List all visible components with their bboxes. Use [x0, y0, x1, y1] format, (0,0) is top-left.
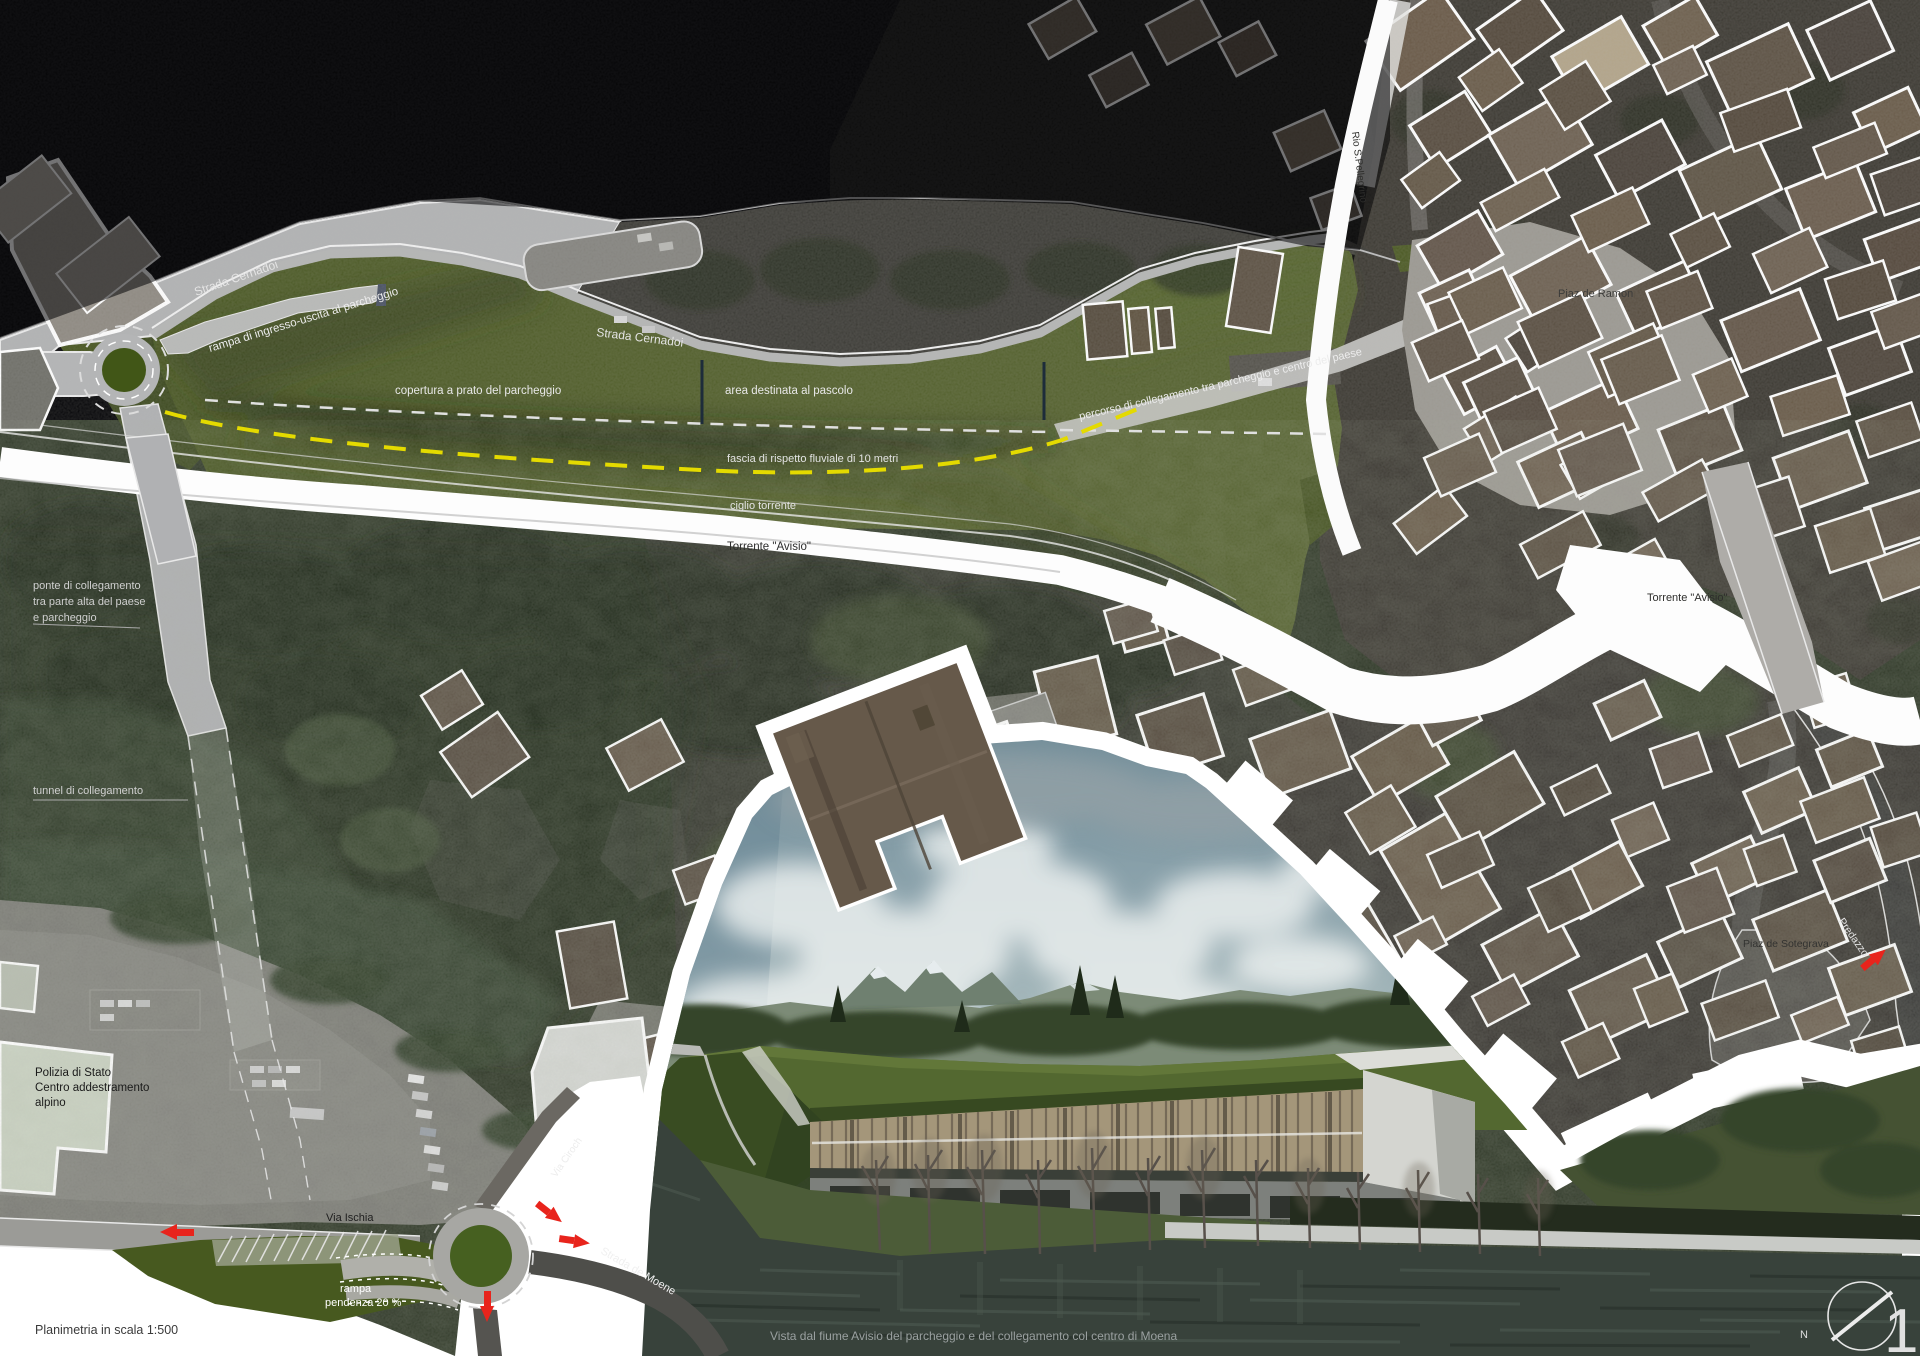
svg-text:Piaz de Ramon: Piaz de Ramon [1558, 288, 1633, 300]
svg-text:Centro addestramento: Centro addestramento [35, 1082, 149, 1094]
svg-text:Vista dal fiume Avisio del par: Vista dal fiume Avisio del parcheggio e … [770, 1329, 1177, 1343]
svg-text:tra parte alta del paese: tra parte alta del paese [33, 596, 146, 608]
svg-text:1: 1 [1884, 1297, 1918, 1356]
svg-text:tunnel di collegamento: tunnel di collegamento [33, 785, 143, 797]
svg-text:N: N [1800, 1329, 1808, 1341]
svg-text:Torrente "Avisio": Torrente "Avisio" [1647, 592, 1727, 604]
svg-text:Torrente "Avisio": Torrente "Avisio" [727, 541, 811, 553]
svg-text:Planimetria in scala 1:500: Planimetria in scala 1:500 [35, 1323, 178, 1337]
svg-text:Polizia di Stato: Polizia di Stato [35, 1067, 111, 1079]
svg-text:Via Ischia: Via Ischia [326, 1212, 374, 1224]
svg-text:copertura a prato del parchegg: copertura a prato del parcheggio [395, 385, 561, 397]
svg-text:ciglio torrente: ciglio torrente [730, 500, 796, 512]
svg-text:e parcheggio: e parcheggio [33, 612, 97, 624]
svg-text:fascia di rispetto fluviale di: fascia di rispetto fluviale di 10 metri [727, 453, 898, 465]
svg-text:alpino: alpino [35, 1097, 66, 1109]
svg-text:Piaz de Sotegrava: Piaz de Sotegrava [1743, 938, 1829, 950]
svg-text:ponte di collegamento: ponte di collegamento [33, 580, 141, 592]
svg-text:area destinata al pascolo: area destinata al pascolo [725, 385, 853, 397]
svg-text:pendenza 20 %: pendenza 20 % [325, 1297, 402, 1309]
svg-text:rampa: rampa [340, 1283, 372, 1295]
